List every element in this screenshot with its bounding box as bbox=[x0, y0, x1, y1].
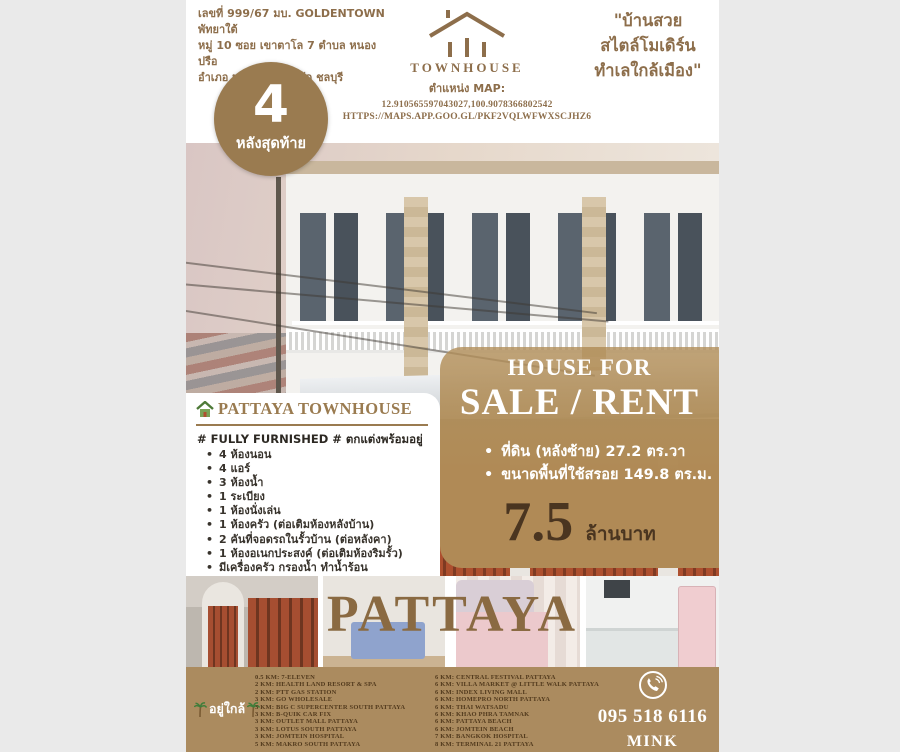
price-row: 7.5 ล้านบาท bbox=[440, 493, 719, 551]
price-value: 7.5 bbox=[503, 493, 573, 551]
feature-item: 4 แอร์ bbox=[206, 462, 403, 476]
distance-item: 3 KM: B-QUIK CAR FIX bbox=[255, 711, 405, 718]
roof-fascia bbox=[286, 161, 719, 174]
sale-heading-top: HOUSE FOR bbox=[440, 355, 719, 381]
nearby-label: อยู่ใกล้ bbox=[209, 699, 245, 719]
sale-detail-item: ที่ดิน (หลังซ้าย) 27.2 ตร.วา bbox=[484, 441, 712, 464]
listing-title-row: PATTAYA TOWNHOUSE bbox=[196, 399, 434, 419]
feature-item: 4 ห้องนอน bbox=[206, 448, 403, 462]
distance-item: 6 KM: PATTAYA BEACH bbox=[435, 718, 599, 725]
sale-heading-main: SALE / RENT bbox=[440, 381, 719, 424]
price-unit: ล้านบาท bbox=[585, 519, 656, 549]
title-underline bbox=[196, 424, 428, 426]
phone-number: 095 518 6116 bbox=[586, 706, 719, 728]
sale-detail-list: ที่ดิน (หลังซ้าย) 27.2 ตร.วาขนาดพื้นที่ใ… bbox=[484, 441, 712, 487]
map-label: ตำแหน่ง MAP: bbox=[312, 79, 622, 97]
badge-label: หลังสุดท้าย bbox=[214, 132, 328, 155]
distance-item: 0.5 KM: 7-ELEVEN bbox=[255, 674, 405, 681]
nearby-label-row: อยู่ใกล้ bbox=[194, 699, 260, 719]
distance-item: 6 KM: CENTRAL FESTIVAL PATTAYA bbox=[435, 674, 599, 681]
green-house-icon bbox=[196, 401, 214, 418]
distance-item: 6 KM: JOMTEIN BEACH bbox=[435, 726, 599, 733]
distance-item: 3 KM: BIG C SUPERCENTER SOUTH PATTAYA bbox=[255, 704, 405, 711]
distance-item: 2 KM: HEALTH LAND RESORT & SPA bbox=[255, 681, 405, 688]
units-left-badge: 4 หลังสุดท้าย bbox=[214, 62, 328, 176]
tagline-line-1: "บ้านสวย bbox=[587, 8, 709, 33]
distance-list-2: 6 KM: CENTRAL FESTIVAL PATTAYA6 KM: VILL… bbox=[435, 674, 599, 748]
distance-item: 6 KM: THAI WATSADU bbox=[435, 704, 599, 711]
distance-item: 8 KM: TERMINAL 21 PATTAYA bbox=[435, 741, 599, 748]
contact-block: 095 518 6116 MINK bbox=[586, 667, 719, 751]
page-background: เลขที่ 999/67 มบ. GOLDENTOWN พัทยาใต้ หม… bbox=[0, 0, 900, 752]
brand-name: TOWNHOUSE bbox=[312, 60, 622, 76]
house-roof-icon bbox=[424, 8, 510, 58]
distance-item: 2 KM: PTT GAS STATION bbox=[255, 689, 405, 696]
contact-name: MINK bbox=[586, 733, 719, 751]
distance-item: 3 KM: JOMTEIN HOSPITAL bbox=[255, 733, 405, 740]
feature-item: มีเครื่องครัว กรองน้ำ ทำน้ำร้อน bbox=[206, 561, 403, 575]
distance-item: 6 KM: KHAO PHRA TAMNAK bbox=[435, 711, 599, 718]
distance-item: 7 KM: BANGKOK HOSPITAL bbox=[435, 733, 599, 740]
feature-list: 4 ห้องนอน4 แอร์3 ห้องน้ำ1 ระเบียง1 ห้องน… bbox=[206, 448, 403, 575]
distance-item: 6 KM: VILLA MARKET @ LITTLE WALK PATTAYA bbox=[435, 681, 599, 688]
footer-bar: อยู่ใกล้ 0.5 KM: 7-ELEVEN2 KM: HEALTH LA… bbox=[186, 667, 719, 752]
map-link: HTTPS://MAPS.APP.GOO.GL/PKF2VQLWFWXSCJHZ… bbox=[312, 112, 622, 122]
feature-item: 1 ห้องนั่งเล่น bbox=[206, 504, 403, 518]
listing-info-panel: PATTAYA TOWNHOUSE # FULLY FURNISHED # ตก… bbox=[186, 393, 440, 576]
badge-number: 4 bbox=[214, 76, 328, 134]
townhouse-logo-block: TOWNHOUSE ตำแหน่ง MAP: 12.91056559704302… bbox=[312, 8, 622, 122]
feature-item: 1 ห้องอเนกประสงค์ (ต่อเติมห้องริมรั้ว) bbox=[206, 547, 403, 561]
distance-item: 3 KM: GO WHOLESALE bbox=[255, 696, 405, 703]
listing-title: PATTAYA TOWNHOUSE bbox=[218, 399, 412, 419]
distance-item: 3 KM: OUTLET MALL PATTAYA bbox=[255, 718, 405, 725]
feature-item: 3 ห้องน้ำ bbox=[206, 476, 403, 490]
sale-rent-panel: HOUSE FOR SALE / RENT ที่ดิน (หลังซ้าย) … bbox=[440, 347, 719, 568]
distance-item: 3 KM: LOTUS SOUTH PATTAYA bbox=[255, 726, 405, 733]
phone-icon bbox=[638, 670, 668, 700]
sale-detail-item: ขนาดพื้นที่ใช้สรอย 149.8 ตร.ม. bbox=[484, 464, 712, 487]
distance-item: 5 KM: MAKRO SOUTH PATTAYA bbox=[255, 741, 405, 748]
feature-item: 1 ระเบียง bbox=[206, 490, 403, 504]
pattaya-watermark: PATTAYA bbox=[186, 585, 719, 644]
tagline-line-3: ทำเลใกล้เมือง" bbox=[587, 58, 709, 83]
distance-item: 6 KM: HOMEPRO NORTH PATTAYA bbox=[435, 696, 599, 703]
tagline-line-2: สไตล์โมเดิร์น bbox=[587, 33, 709, 58]
upper-windows bbox=[292, 213, 719, 325]
real-estate-flyer: เลขที่ 999/67 มบ. GOLDENTOWN พัทยาใต้ หม… bbox=[186, 0, 719, 752]
distance-item: 6 KM: INDEX LIVING MALL bbox=[435, 689, 599, 696]
palm-tree-icon bbox=[194, 701, 207, 717]
map-coordinates: 12.910565597043027,100.9078366802542 bbox=[312, 100, 622, 110]
distance-list-1: 0.5 KM: 7-ELEVEN2 KM: HEALTH LAND RESORT… bbox=[255, 674, 405, 748]
furnished-line: # FULLY FURNISHED # ตกแต่งพร้อมอยู่ bbox=[197, 431, 423, 449]
tagline: "บ้านสวย สไตล์โมเดิร์น ทำเลใกล้เมือง" bbox=[587, 8, 709, 83]
feature-item: 2 คันที่จอดรถในรั้วบ้าน (ต่อหลังคา) bbox=[206, 533, 403, 547]
feature-item: 1 ห้องครัว (ต่อเติมห้องหลังบ้าน) bbox=[206, 518, 403, 532]
